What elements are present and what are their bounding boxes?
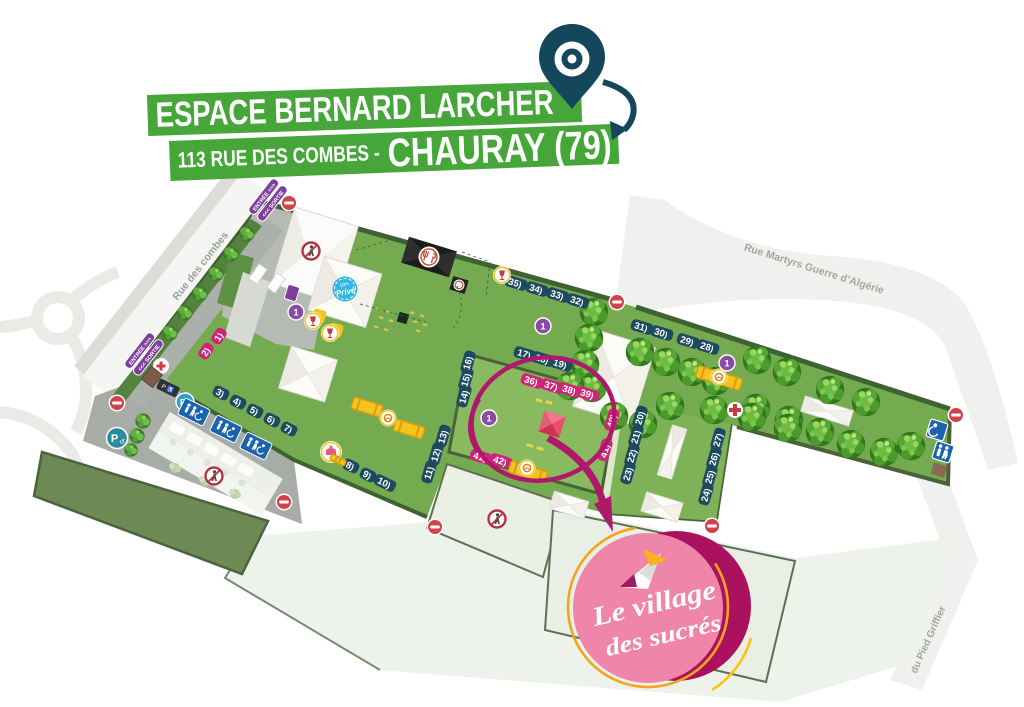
svg-text:P: P — [111, 433, 118, 445]
svg-text:1: 1 — [293, 307, 299, 318]
svg-text:1: 1 — [486, 413, 492, 424]
svg-text:1: 1 — [724, 358, 730, 369]
svg-text:CHAURAY (79): CHAURAY (79) — [387, 123, 613, 176]
svg-text:1: 1 — [540, 321, 546, 332]
svg-text:↺: ↺ — [119, 439, 125, 446]
